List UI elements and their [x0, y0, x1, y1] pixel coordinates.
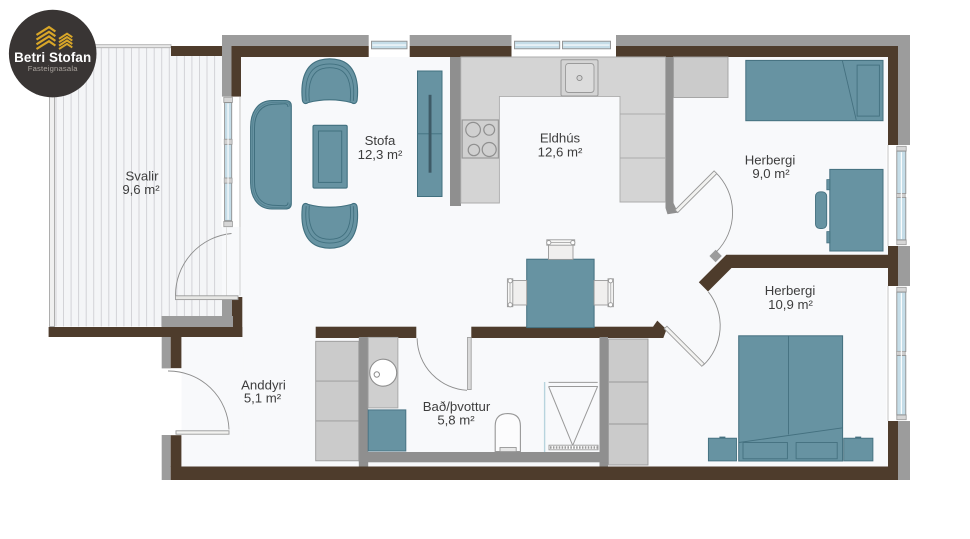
svg-text:Fasteignasala: Fasteignasala — [28, 64, 78, 73]
svg-text:Betri Stofan: Betri Stofan — [14, 50, 91, 65]
svg-text:9,0 m²: 9,0 m² — [752, 166, 790, 181]
svg-text:Eldhús: Eldhús — [540, 131, 581, 146]
svg-text:10,9 m²: 10,9 m² — [768, 297, 813, 312]
svg-text:Stofa: Stofa — [365, 133, 396, 148]
svg-text:Herbergi: Herbergi — [765, 283, 816, 298]
svg-text:5,8 m²: 5,8 m² — [437, 412, 475, 427]
svg-text:12,6 m²: 12,6 m² — [538, 145, 583, 160]
svg-text:12,3 m²: 12,3 m² — [358, 147, 403, 162]
svg-text:9,6 m²: 9,6 m² — [122, 182, 160, 197]
svg-text:5,1 m²: 5,1 m² — [244, 391, 282, 406]
